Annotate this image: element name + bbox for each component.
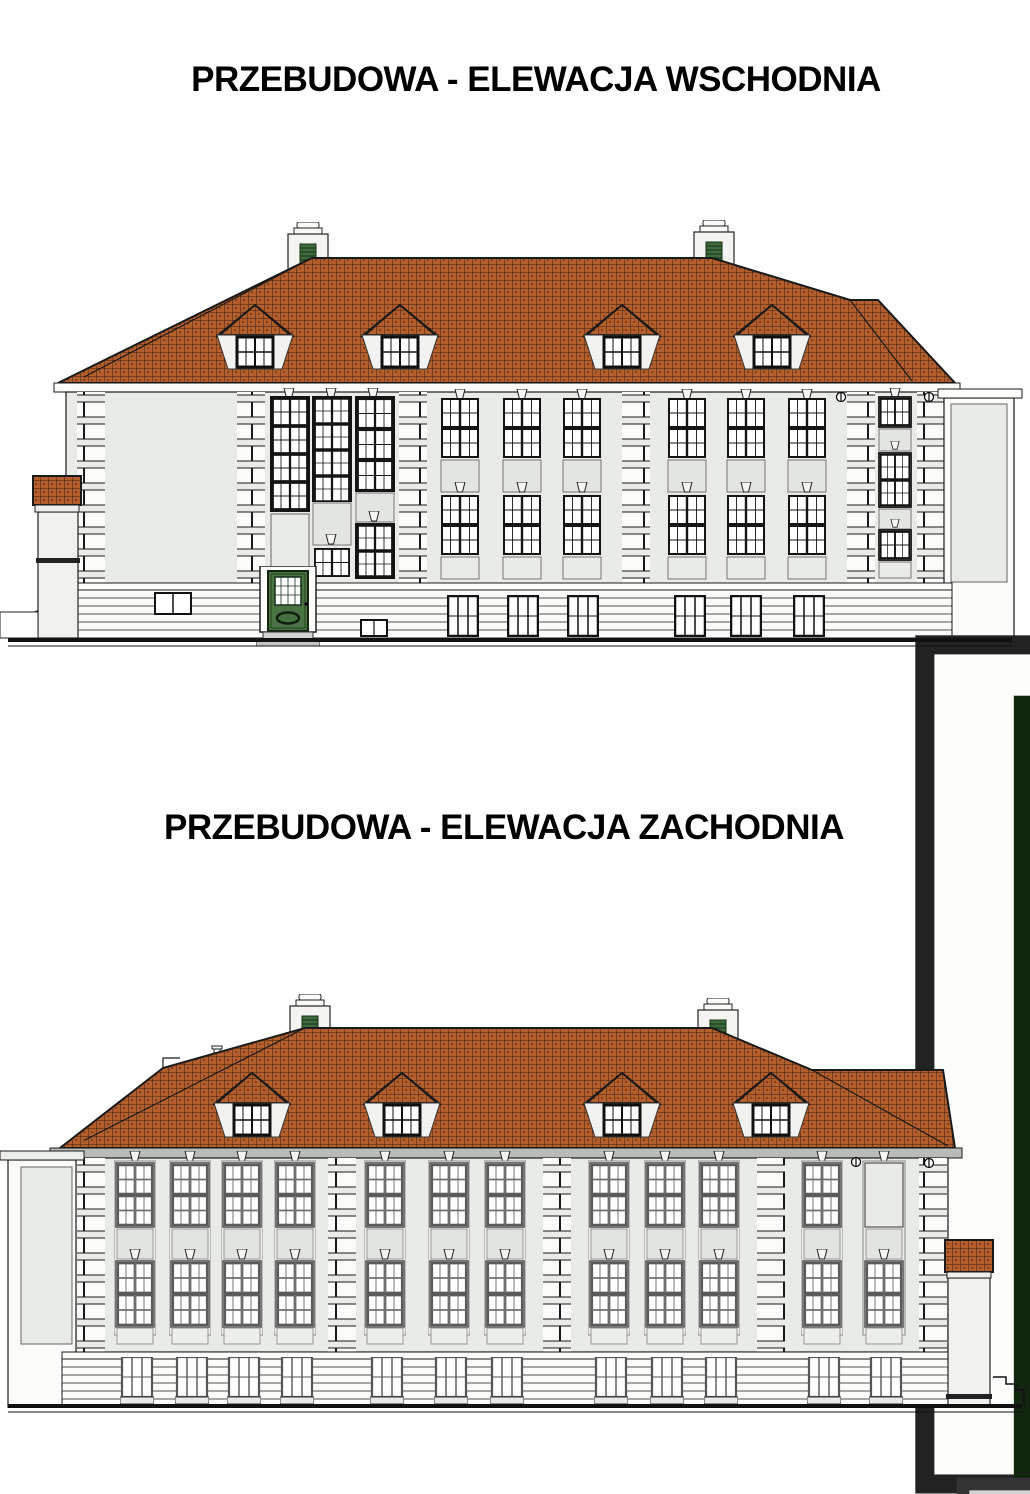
west-basement-window-7 (490, 1357, 524, 1404)
west-elevation (0, 994, 1024, 1412)
west-basement-window-6 (434, 1357, 468, 1404)
east-window-bay-5 (503, 389, 541, 579)
west-basement-window-8 (594, 1357, 628, 1404)
east-window-bay-10 (879, 388, 911, 578)
east-basement-window-1 (448, 596, 478, 636)
east-basement (60, 590, 952, 638)
east-basement-window-6 (794, 596, 824, 636)
west-basement-window-10 (704, 1357, 738, 1404)
west-basement-window-2 (175, 1357, 209, 1404)
east-window-bay-9 (788, 389, 826, 579)
west-window-bay-9 (644, 1151, 686, 1344)
east-basement-window-2 (508, 596, 538, 636)
east-window-bay-8 (727, 389, 765, 579)
east-window-bay-6 (563, 389, 601, 579)
west-window-bay-3 (221, 1151, 263, 1344)
west-basement-window-5 (370, 1357, 404, 1404)
west-window-bay-4 (274, 1151, 316, 1344)
east-window-bay-3 (356, 388, 394, 578)
west-basement (62, 1357, 952, 1405)
west-basement-window-12 (869, 1357, 903, 1404)
east-basement-window-5 (731, 596, 761, 636)
west-window-bay-5 (364, 1151, 406, 1344)
west-window-bay-6 (428, 1151, 470, 1344)
west-window-bay-10 (698, 1151, 740, 1344)
east-eaves-fascia (54, 383, 960, 392)
west-basement-window-4 (280, 1357, 314, 1404)
west-basement-window-1 (120, 1357, 154, 1404)
east-window-bay-1 (271, 388, 309, 568)
west-window-bay-8 (588, 1151, 630, 1344)
east-window-bay-4 (441, 389, 479, 579)
elevation-drawings (0, 0, 1030, 1494)
west-window-bay-11 (801, 1151, 843, 1344)
west-window-bay-2 (169, 1151, 211, 1344)
west-roof (60, 1028, 955, 1148)
west-ground-line (8, 1404, 1022, 1412)
east-window-bay-7 (668, 389, 706, 579)
east-basement-window-3 (568, 596, 598, 636)
east-left-pillar (0, 476, 81, 638)
east-ground-line (8, 638, 1012, 646)
west-window-bay-12 (863, 1151, 905, 1344)
west-window-bay-1 (114, 1151, 156, 1344)
west-window-bay-7 (484, 1151, 526, 1344)
west-basement-window-11 (807, 1357, 841, 1404)
west-basement-window-3 (227, 1357, 261, 1404)
east-basement-window-4 (675, 596, 705, 636)
east-entrance-door-left (256, 566, 320, 646)
west-basement-window-9 (650, 1357, 684, 1404)
east-stringcourse (60, 583, 952, 590)
